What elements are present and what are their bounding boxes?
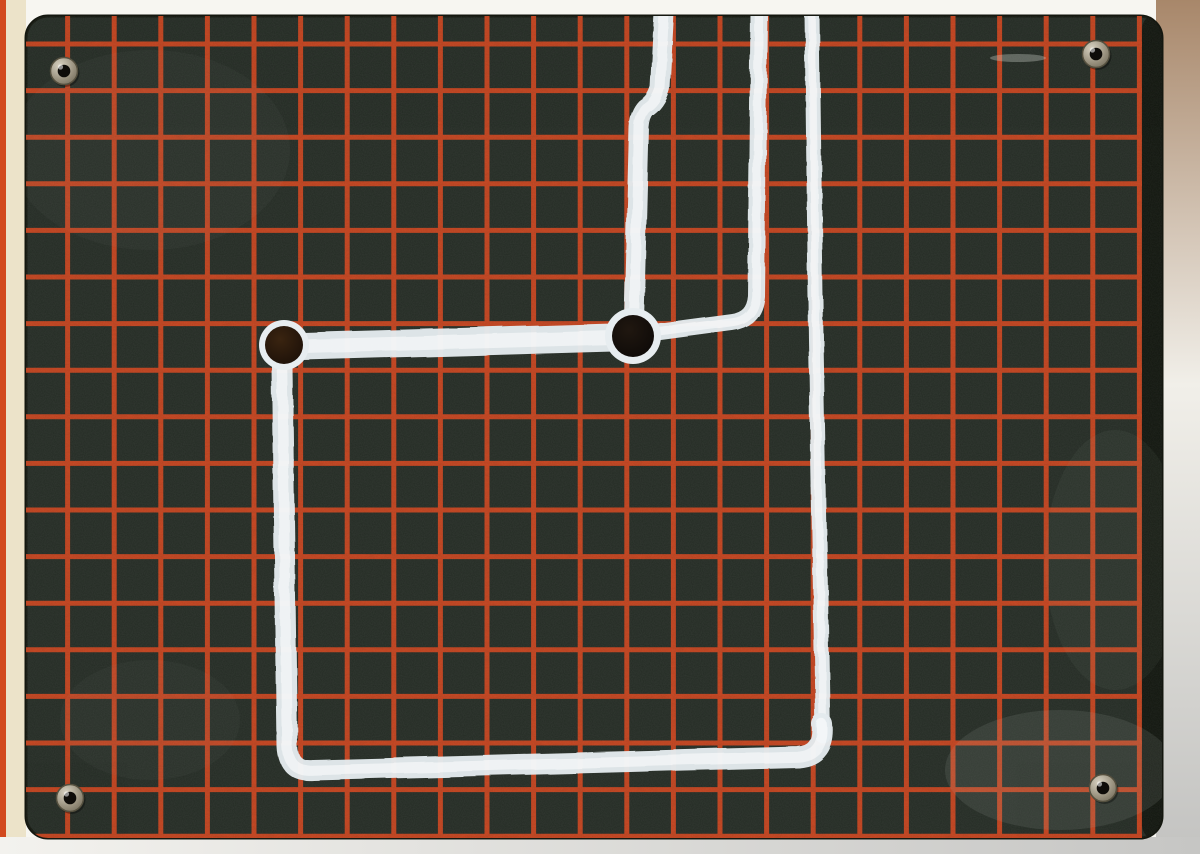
grommet-top-left-glint <box>58 64 63 69</box>
scratch-marks-top-right <box>990 54 1046 62</box>
left-edge-stripe <box>0 0 6 854</box>
grommet-bottom-right-glint <box>1097 781 1102 786</box>
pad-left <box>265 326 303 364</box>
bottom-scan-band <box>0 837 1200 854</box>
smudge-top-left-sheen <box>10 50 290 250</box>
trace-horizontal-main-highlight <box>286 337 631 347</box>
grommet-bottom-left-glint <box>64 791 69 796</box>
grommet-top-right-glint <box>1090 47 1095 52</box>
board-scene-svg <box>0 0 1200 854</box>
smudge-bottom-left <box>60 660 240 780</box>
pad-junction <box>612 315 654 357</box>
smudge-bottom-right <box>945 710 1175 830</box>
scanned-board-photo <box>0 0 1200 854</box>
